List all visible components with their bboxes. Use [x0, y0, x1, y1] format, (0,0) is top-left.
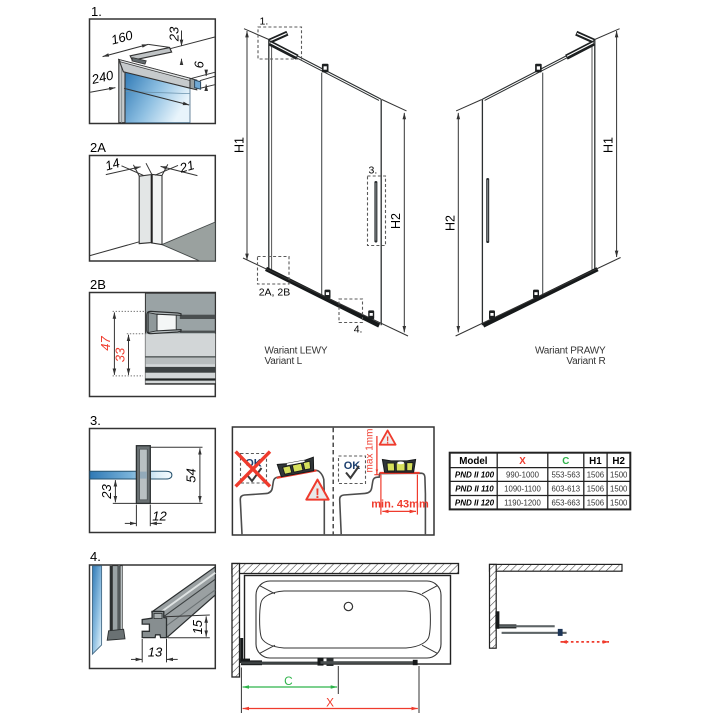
svg-text:C: C: [284, 674, 293, 688]
svg-text:23: 23: [99, 484, 114, 500]
svg-text:!: !: [315, 485, 320, 501]
svg-text:Variant R: Variant R: [566, 356, 605, 367]
svg-text:Variant L: Variant L: [265, 356, 303, 367]
svg-text:4.: 4.: [354, 324, 363, 336]
svg-text:2A, 2B: 2A, 2B: [259, 287, 291, 299]
svg-text:H2: H2: [612, 456, 625, 467]
svg-text:H1: H1: [232, 137, 246, 153]
svg-text:54: 54: [184, 468, 199, 482]
svg-text:1506: 1506: [587, 470, 604, 479]
svg-text:PND II 100: PND II 100: [455, 470, 495, 479]
svg-text:240: 240: [89, 67, 115, 87]
svg-text:1500: 1500: [610, 484, 628, 493]
svg-text:2B: 2B: [90, 277, 106, 292]
svg-text:12: 12: [152, 509, 167, 524]
svg-text:6: 6: [192, 60, 207, 68]
svg-text:4.: 4.: [90, 549, 101, 564]
svg-text:1.: 1.: [260, 16, 269, 28]
svg-text:min. 43mm: min. 43mm: [371, 499, 429, 511]
svg-text:1.: 1.: [91, 4, 102, 19]
svg-text:603-613: 603-613: [551, 484, 580, 493]
svg-text:C: C: [562, 456, 569, 467]
svg-text:Model: Model: [459, 456, 488, 467]
svg-text:1190-1200: 1190-1200: [504, 499, 541, 508]
svg-text:160: 160: [109, 27, 135, 47]
svg-text:max 1mm: max 1mm: [365, 429, 376, 473]
svg-text:33: 33: [112, 347, 127, 362]
svg-text:X: X: [326, 696, 334, 710]
svg-text:1506: 1506: [587, 499, 604, 508]
svg-text:2A: 2A: [90, 140, 106, 155]
svg-text:990-1000: 990-1000: [506, 470, 540, 479]
svg-text:X: X: [519, 456, 526, 467]
svg-text:1506: 1506: [587, 484, 604, 493]
svg-text:23: 23: [167, 26, 182, 42]
svg-text:H2: H2: [389, 213, 403, 229]
svg-text:Wariant LEWY: Wariant LEWY: [265, 346, 328, 357]
svg-text:!: !: [386, 435, 389, 446]
svg-text:14: 14: [103, 155, 121, 173]
svg-text:3.: 3.: [90, 413, 101, 428]
svg-text:H1: H1: [601, 137, 615, 153]
svg-text:47: 47: [98, 336, 113, 351]
svg-text:653-663: 653-663: [551, 499, 580, 508]
svg-text:H2: H2: [444, 215, 458, 231]
svg-text:13: 13: [148, 644, 163, 659]
svg-text:1090-1100: 1090-1100: [504, 484, 541, 493]
svg-text:3.: 3.: [369, 165, 378, 177]
svg-text:1500: 1500: [610, 499, 628, 508]
svg-text:H1: H1: [589, 456, 602, 467]
svg-text:PND II 120: PND II 120: [455, 499, 495, 508]
svg-text:553-563: 553-563: [551, 470, 580, 479]
svg-text:1500: 1500: [610, 470, 628, 479]
svg-text:Wariant PRAWY: Wariant PRAWY: [535, 346, 606, 357]
svg-text:21: 21: [177, 157, 196, 176]
svg-text:15: 15: [190, 619, 205, 634]
svg-text:PND II 110: PND II 110: [455, 484, 494, 493]
